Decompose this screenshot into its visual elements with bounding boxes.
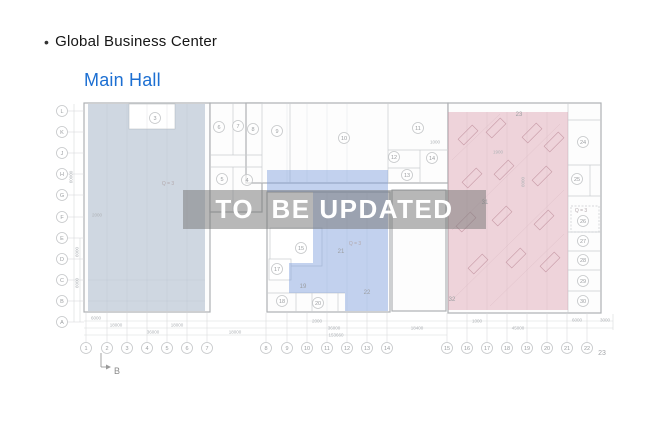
room-number-plain: 21 (338, 249, 345, 255)
svg-text:3: 3 (125, 346, 128, 352)
axis-number: 3 (122, 343, 133, 354)
svg-text:5: 5 (165, 346, 168, 352)
svg-text:8: 8 (264, 346, 267, 352)
room-number: 17 (272, 264, 283, 275)
svg-text:2: 2 (105, 346, 108, 352)
svg-text:14: 14 (429, 156, 435, 162)
dimension-label: 6000 (572, 318, 583, 323)
svg-text:11: 11 (415, 126, 421, 132)
svg-text:17: 17 (274, 267, 280, 273)
svg-text:18: 18 (279, 299, 285, 305)
dimension-label: 1000 (430, 140, 441, 145)
room-number: 20 (313, 298, 324, 309)
svg-text:C: C (60, 278, 64, 284)
svg-text:24: 24 (580, 140, 586, 146)
svg-text:30: 30 (580, 299, 586, 305)
room-number: 25 (572, 174, 583, 185)
svg-text:12: 12 (391, 155, 397, 161)
dimension-label: 2000 (92, 213, 103, 218)
svg-text:7: 7 (205, 346, 208, 352)
axis-letter: H (57, 169, 68, 180)
svg-text:L: L (60, 109, 63, 115)
axis-letter: F (57, 212, 68, 223)
axis-letter: B (57, 296, 68, 307)
plan-annotation: Q = 3 (349, 241, 362, 247)
axis-number: 16 (462, 343, 473, 354)
room-number: 15 (296, 243, 307, 254)
svg-text:15: 15 (444, 346, 450, 352)
room-number: 27 (578, 236, 589, 247)
axis-number: 18 (502, 343, 513, 354)
room-number: 4 (242, 175, 253, 186)
dimension-label: 153660 (328, 333, 344, 338)
dimension-label: 2000 (312, 319, 323, 324)
axis-number: 17 (482, 343, 493, 354)
axis-number: 11 (322, 343, 333, 354)
axis-number: 13 (362, 343, 373, 354)
svg-text:12: 12 (344, 346, 350, 352)
room-number: 30 (578, 296, 589, 307)
room-number: 11 (413, 123, 424, 134)
svg-text:6: 6 (185, 346, 188, 352)
axis-number: 15 (442, 343, 453, 354)
svg-text:29: 29 (580, 279, 586, 285)
svg-text:A: A (60, 320, 64, 326)
svg-text:8: 8 (251, 127, 254, 133)
svg-text:B: B (60, 299, 64, 305)
axis-number: 2 (102, 343, 113, 354)
svg-text:19: 19 (524, 346, 530, 352)
room-number: 28 (578, 255, 589, 266)
svg-text:17: 17 (484, 346, 490, 352)
dimension-label: 6000 (521, 176, 526, 187)
svg-text:15: 15 (298, 246, 304, 252)
room-number: 18 (277, 296, 288, 307)
room-number: 14 (427, 153, 438, 164)
dimension-label: 18000 (110, 323, 123, 328)
room-number-plain: 32 (449, 297, 456, 303)
svg-text:1: 1 (84, 346, 87, 352)
svg-text:K: K (60, 130, 64, 136)
svg-text:H: H (60, 172, 64, 178)
section-marker-b-label: B (114, 366, 120, 376)
svg-text:14: 14 (384, 346, 390, 352)
bullet-icon: • (44, 34, 49, 50)
axis-letter: G (57, 190, 68, 201)
svg-text:G: G (60, 193, 64, 199)
svg-text:18: 18 (504, 346, 510, 352)
svg-text:D: D (60, 257, 64, 263)
dimension-label: 36000 (147, 330, 160, 335)
dimension-label: 6000 (75, 246, 80, 257)
svg-text:J: J (61, 151, 64, 157)
axis-number: 12 (342, 343, 353, 354)
axis-number: 21 (562, 343, 573, 354)
axis-letter: E (57, 233, 68, 244)
dimension-label: 6000 (75, 277, 80, 288)
axis-number: 6 (182, 343, 193, 354)
plan-annotation: Q = 3 (575, 208, 588, 214)
svg-text:3: 3 (153, 116, 156, 122)
axis-number: 19 (522, 343, 533, 354)
axis-letter: J (57, 148, 68, 159)
svg-text:10: 10 (341, 136, 347, 142)
svg-text:E: E (60, 236, 64, 242)
axis-number: 20 (542, 343, 553, 354)
svg-text:7: 7 (236, 124, 239, 130)
dimension-label: 1900 (493, 150, 504, 155)
room-number: 10 (339, 133, 350, 144)
room-number: 9 (272, 126, 283, 137)
section-marker-b (101, 353, 111, 370)
axis-number: 9 (282, 343, 293, 354)
svg-text:11: 11 (324, 346, 330, 352)
axis-letter: C (57, 275, 68, 286)
dimension-label: 18000 (171, 323, 184, 328)
page-title: Global Business Center (55, 33, 217, 50)
dimension-label: 6000 (91, 316, 102, 321)
svg-text:28: 28 (580, 258, 586, 264)
axis-number: 10 (302, 343, 313, 354)
dimension-label: 18000 (229, 330, 242, 335)
room-number: 29 (578, 276, 589, 287)
svg-text:6: 6 (217, 125, 220, 131)
svg-text:4: 4 (145, 346, 148, 352)
axis-letter: L (57, 106, 68, 117)
room-number-plain: 23 (516, 112, 523, 118)
plan-annotation: Q = 3 (162, 181, 175, 187)
axis-number: 22 (582, 343, 593, 354)
room-number: 6 (214, 122, 225, 133)
watermark-banner: TO BE UPDATED (183, 190, 486, 229)
axis-number-plain: 23 (598, 350, 606, 357)
room-number: 12 (389, 152, 400, 163)
room-number: 8 (248, 124, 259, 135)
room-number: 24 (578, 137, 589, 148)
room-number: 3 (150, 113, 161, 124)
svg-text:5: 5 (220, 177, 223, 183)
svg-text:9: 9 (275, 129, 278, 135)
axis-letter: K (57, 127, 68, 138)
watermark-text: TO BE UPDATED (215, 194, 453, 225)
axis-number: 8 (261, 343, 272, 354)
axis-number: 5 (162, 343, 173, 354)
svg-text:16: 16 (464, 346, 470, 352)
svg-text:25: 25 (574, 177, 580, 183)
dimension-label: 3000 (600, 318, 611, 323)
svg-text:21: 21 (564, 346, 570, 352)
svg-text:20: 20 (544, 346, 550, 352)
dimension-label: 45000 (512, 326, 525, 331)
svg-text:10: 10 (304, 346, 310, 352)
svg-text:20: 20 (315, 301, 321, 307)
room-number: 13 (402, 170, 413, 181)
dimension-label: 1000 (472, 319, 483, 324)
room-number-plain: 19 (300, 284, 307, 290)
page-header: • Global Business Center (44, 33, 217, 50)
svg-text:13: 13 (404, 173, 410, 179)
svg-text:27: 27 (580, 239, 586, 245)
axis-letter: D (57, 254, 68, 265)
room-number: 26 (578, 216, 589, 227)
axis-number: 14 (382, 343, 393, 354)
svg-text:26: 26 (580, 219, 586, 225)
axis-number: 1 (81, 343, 92, 354)
room-number-plain: 22 (364, 290, 371, 296)
axis-number: 7 (202, 343, 213, 354)
svg-text:4: 4 (245, 178, 248, 184)
room-number: 7 (233, 121, 244, 132)
svg-text:22: 22 (584, 346, 590, 352)
room-number: 5 (217, 174, 228, 185)
svg-text:9: 9 (285, 346, 288, 352)
svg-text:13: 13 (364, 346, 370, 352)
axis-number: 4 (142, 343, 153, 354)
hall-title: Main Hall (84, 70, 161, 91)
dimension-label: 60000 (69, 170, 74, 183)
dimension-label: 36000 (328, 326, 341, 331)
dimension-label: 18400 (411, 326, 424, 331)
axis-letter: A (57, 317, 68, 328)
